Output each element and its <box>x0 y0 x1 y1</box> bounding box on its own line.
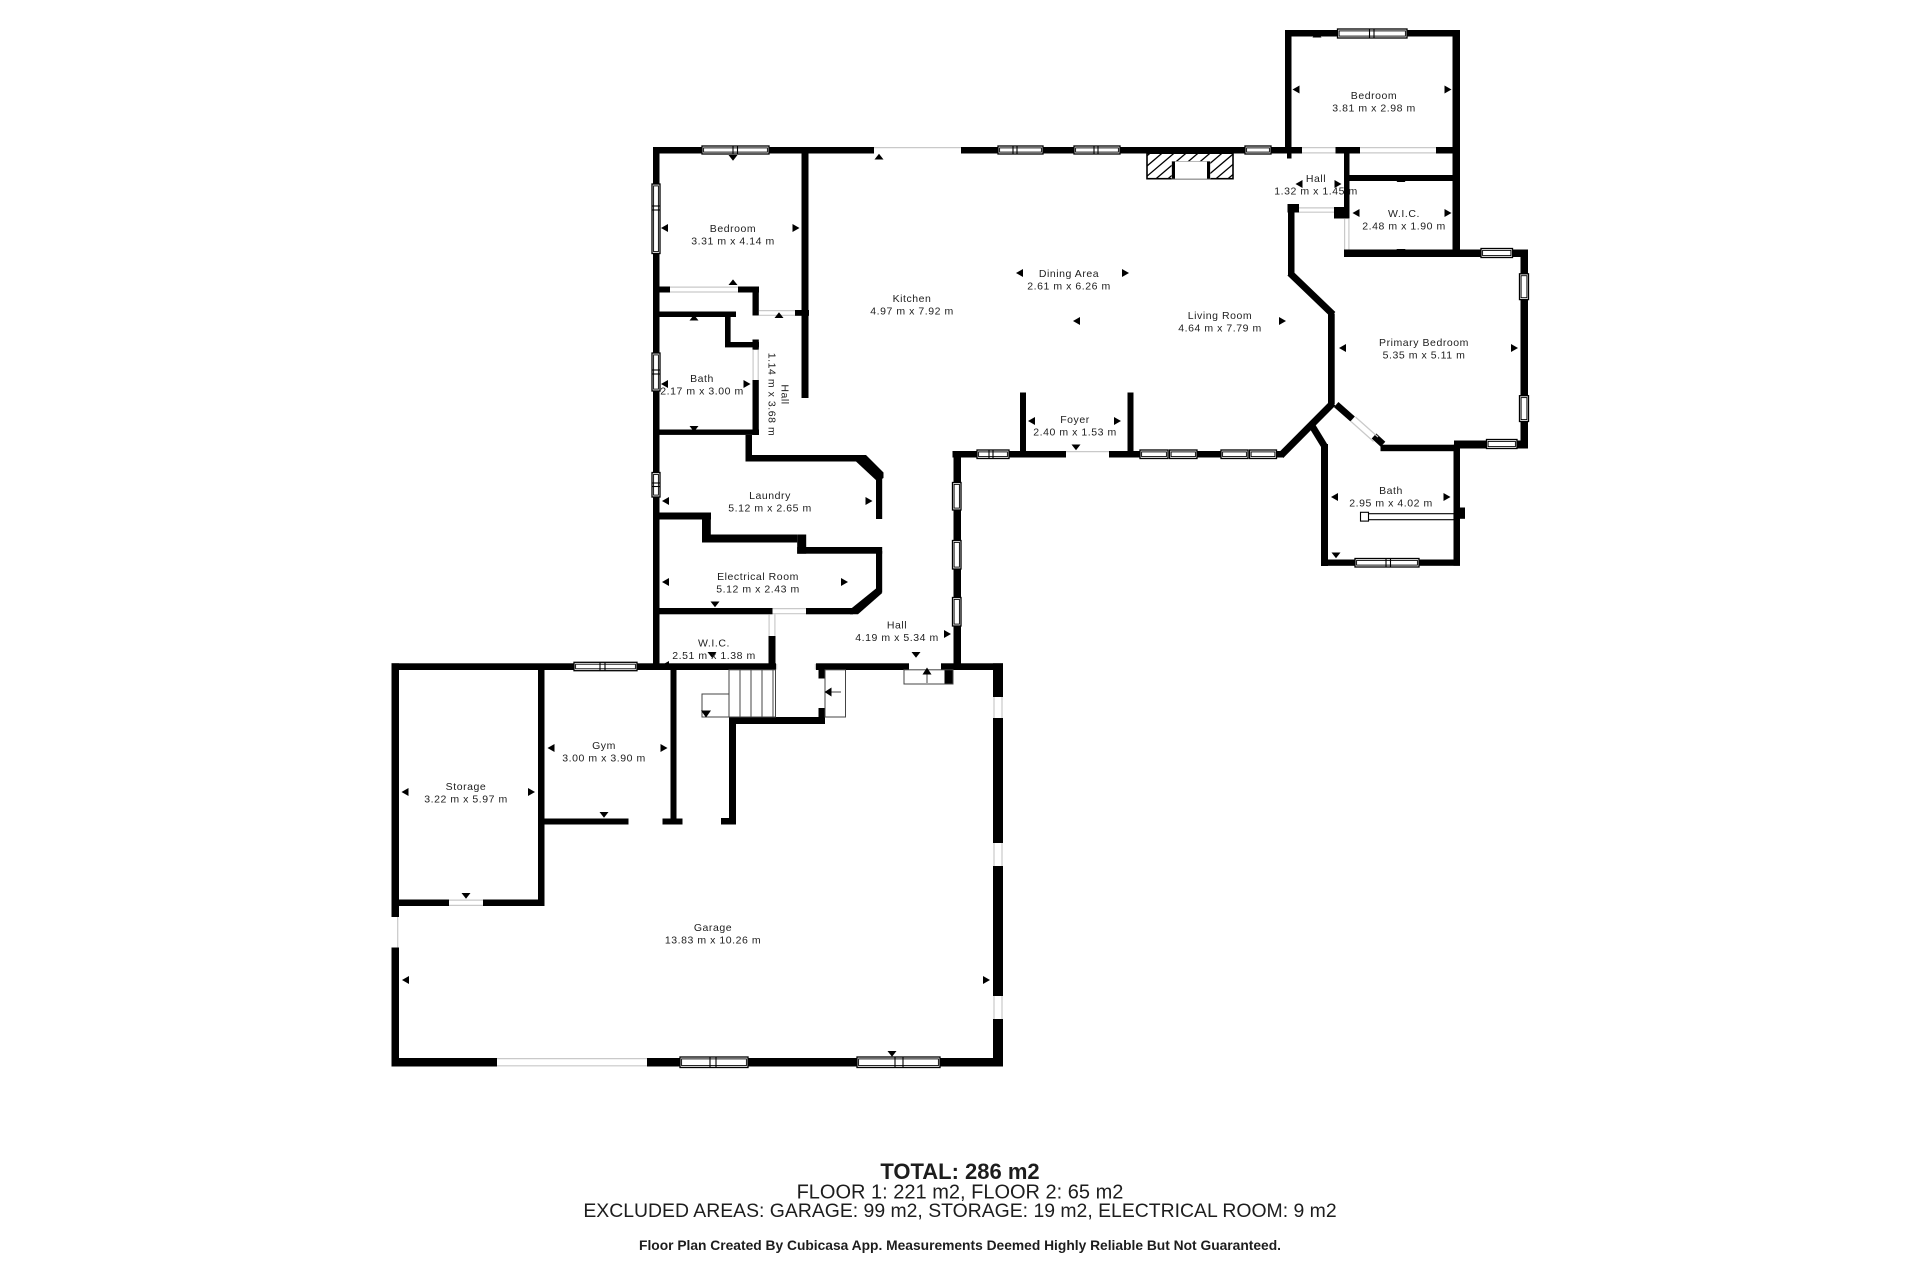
svg-text:W.I.C.: W.I.C. <box>698 638 730 650</box>
svg-text:Bath: Bath <box>690 373 714 385</box>
svg-text:2.51 m x 1.38 m: 2.51 m x 1.38 m <box>672 650 756 662</box>
svg-text:TOTAL: 286 m2: TOTAL: 286 m2 <box>880 1159 1039 1184</box>
svg-text:5.35 m x 5.11 m: 5.35 m x 5.11 m <box>1383 350 1466 362</box>
svg-text:Bedroom: Bedroom <box>710 223 756 235</box>
svg-text:W.I.C.: W.I.C. <box>1388 208 1420 220</box>
svg-text:3.31 m x 4.14 m: 3.31 m x 4.14 m <box>691 236 775 248</box>
svg-text:Primary Bedroom: Primary Bedroom <box>1379 337 1469 349</box>
svg-text:Laundry: Laundry <box>749 490 791 502</box>
svg-text:Garage: Garage <box>694 922 732 934</box>
svg-text:2.95 m x 4.02 m: 2.95 m x 4.02 m <box>1349 498 1433 510</box>
svg-text:Hall: Hall <box>779 384 791 404</box>
svg-text:Bath: Bath <box>1379 485 1403 497</box>
svg-text:Dining Area: Dining Area <box>1039 268 1099 280</box>
svg-text:2.17 m x 3.00 m: 2.17 m x 3.00 m <box>660 386 744 398</box>
svg-text:Floor Plan Created By Cubicasa: Floor Plan Created By Cubicasa App. Meas… <box>639 1238 1281 1253</box>
svg-text:Bedroom: Bedroom <box>1351 90 1397 102</box>
svg-text:3.22 m x 5.97 m: 3.22 m x 5.97 m <box>424 794 508 806</box>
svg-text:Hall: Hall <box>887 620 907 632</box>
svg-text:Kitchen: Kitchen <box>893 293 932 305</box>
svg-text:Hall: Hall <box>1306 173 1326 185</box>
svg-text:Living Room: Living Room <box>1188 310 1252 322</box>
svg-text:13.83 m x 10.26 m: 13.83 m x 10.26 m <box>665 935 761 947</box>
svg-text:4.64 m x 7.79 m: 4.64 m x 7.79 m <box>1178 323 1262 335</box>
svg-text:1.32 m x 1.45 m: 1.32 m x 1.45 m <box>1274 186 1358 198</box>
svg-text:Storage: Storage <box>446 781 487 793</box>
svg-text:5.12 m x 2.65 m: 5.12 m x 2.65 m <box>728 503 812 515</box>
svg-text:5.12 m x 2.43 m: 5.12 m x 2.43 m <box>716 584 800 596</box>
svg-text:Foyer: Foyer <box>1060 414 1090 426</box>
svg-text:EXCLUDED AREAS: GARAGE: 99 m2,: EXCLUDED AREAS: GARAGE: 99 m2, STORAGE: … <box>583 1200 1336 1222</box>
svg-text:Electrical Room: Electrical Room <box>717 571 799 583</box>
svg-text:2.61 m x 6.26 m: 2.61 m x 6.26 m <box>1027 281 1111 293</box>
svg-text:4.97 m x 7.92 m: 4.97 m x 7.92 m <box>870 306 954 318</box>
svg-text:1.14 m x 3.68 m: 1.14 m x 3.68 m <box>766 353 778 437</box>
svg-text:2.48 m x 1.90 m: 2.48 m x 1.90 m <box>1362 221 1446 233</box>
svg-text:4.19 m x 5.34 m: 4.19 m x 5.34 m <box>855 632 939 644</box>
svg-text:2.40 m x 1.53 m: 2.40 m x 1.53 m <box>1033 427 1117 439</box>
svg-text:3.81 m x 2.98 m: 3.81 m x 2.98 m <box>1332 103 1416 115</box>
svg-text:Gym: Gym <box>592 740 616 752</box>
svg-text:3.00 m x 3.90 m: 3.00 m x 3.90 m <box>562 753 646 765</box>
